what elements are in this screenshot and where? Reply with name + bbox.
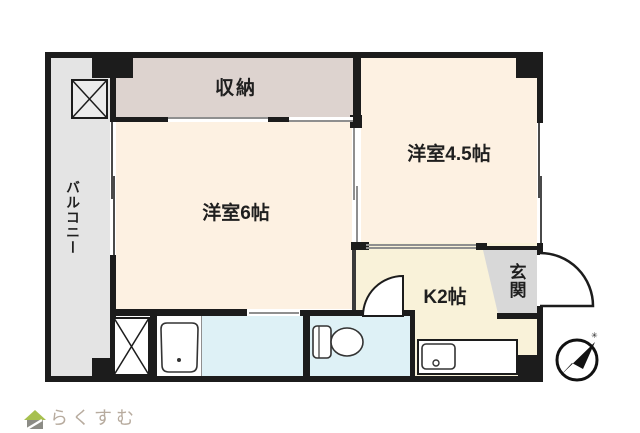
wall-storage-right	[353, 52, 361, 123]
wall-left	[45, 52, 51, 382]
compass-north-mark: ✳	[591, 331, 598, 340]
entrance-door	[538, 251, 596, 309]
wall-washroom-toilet	[303, 316, 310, 376]
entrance-bottom-wall	[497, 313, 540, 319]
block-bottom-right	[518, 355, 537, 376]
floorplan-page: { "rooms": { "balcony": "バルコニー", "storag…	[0, 0, 640, 433]
bathtub-icon	[157, 320, 202, 375]
toilet-icon	[310, 322, 368, 364]
washroom-area	[202, 316, 303, 376]
compass-icon	[552, 334, 602, 384]
wall-toilet-kitchen	[410, 316, 415, 376]
wall-storage-bottom	[116, 117, 170, 122]
entrance-top-wall	[483, 246, 540, 250]
kitchen-label: K2帖	[399, 285, 491, 306]
balcony-label: バルコニー	[61, 167, 85, 267]
kitchen-left-partition	[352, 250, 356, 310]
kitchen-top-partition	[366, 244, 478, 246]
western-room-45-label: 洋室4.5帖	[379, 142, 519, 163]
entrance-label: 玄関	[503, 252, 529, 309]
wall-strip-top-a	[110, 309, 247, 316]
room-partition-sliding-door	[353, 128, 355, 200]
wall-xbox-bath	[150, 316, 157, 376]
washing-machine-crossed-box-icon	[113, 317, 150, 376]
western-room-6-label: 洋室6帖	[166, 201, 306, 222]
closet-door-tick	[268, 117, 289, 122]
pillar-top-right	[516, 58, 540, 78]
logo-text: らくすむ	[50, 404, 138, 430]
outdoor-unit-crossed-box-icon	[71, 79, 108, 119]
kitchen-sink-icon	[420, 342, 460, 373]
logo-house-icon	[24, 410, 46, 430]
wall-bottom	[45, 376, 543, 382]
storage-label: 収納	[180, 76, 292, 97]
